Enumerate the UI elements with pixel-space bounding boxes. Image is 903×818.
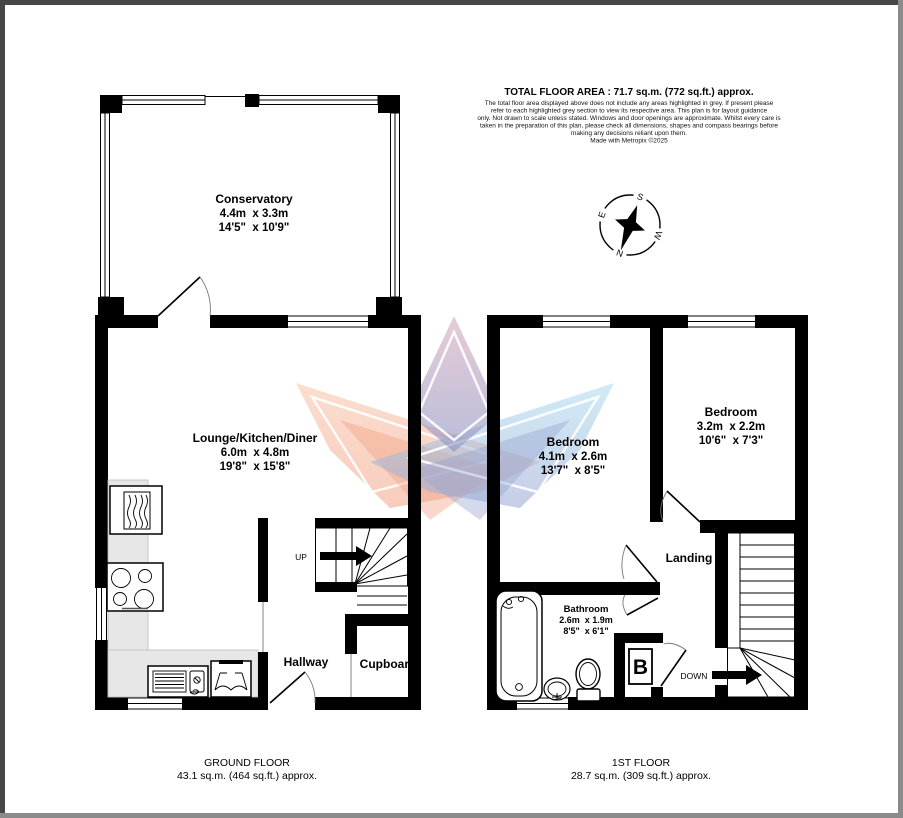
watermark-logo bbox=[296, 316, 614, 520]
sink-icon bbox=[148, 666, 208, 697]
window-top-bedroom1 bbox=[543, 315, 610, 328]
cupboard-label: Cupboard bbox=[360, 657, 417, 671]
conservatory-dims-ft: 14'5" x 10'9" bbox=[219, 222, 290, 234]
disclaimer-line-5: making any decisions reliant upon them. bbox=[571, 130, 687, 137]
bedroom2-dims-ft: 10'6" x 7'3" bbox=[699, 435, 763, 447]
bathroom-door bbox=[623, 595, 658, 615]
window-top-bedroom2 bbox=[688, 315, 755, 328]
landing-label: Landing bbox=[666, 551, 713, 565]
washing-machine-icon bbox=[211, 660, 251, 697]
down-label: DOWN bbox=[681, 671, 708, 681]
footer-labels: GROUND FLOOR 43.1 sq.m. (464 sq.ft.) app… bbox=[177, 757, 711, 782]
boiler-label: B bbox=[633, 656, 648, 679]
lounge-name: Lounge/Kitchen/Diner bbox=[193, 431, 318, 445]
bedroom2-door bbox=[661, 491, 700, 522]
window-left-ground bbox=[95, 588, 108, 640]
conservatory-door bbox=[158, 277, 210, 316]
hallway-label: Hallway bbox=[284, 655, 329, 669]
bedroom2-dims-m: 3.2m x 2.2m bbox=[697, 421, 765, 433]
basin-icon bbox=[544, 678, 570, 700]
toilet-icon bbox=[576, 659, 600, 701]
bedroom1-dims-ft: 13'7" x 8'5" bbox=[541, 465, 605, 477]
hob-icon bbox=[107, 563, 163, 611]
boiler-icon: B bbox=[629, 649, 652, 684]
disclaimer-line-4: taken in the preparation of this plan, p… bbox=[480, 123, 778, 130]
first-floor-label: 1ST FLOOR bbox=[612, 757, 671, 769]
first-floor-area: 28.7 sq.m. (309 sq.ft.) approx. bbox=[571, 770, 711, 782]
disclaimer-line-2: refer to each highlighted grey section t… bbox=[491, 108, 768, 115]
front-door bbox=[270, 672, 315, 703]
oven-icon bbox=[110, 486, 162, 534]
ground-floor-label: GROUND FLOOR bbox=[204, 757, 290, 769]
disclaimer-line-3: only. Not drawn to scale unless stated. … bbox=[477, 115, 781, 122]
total-floor-area: TOTAL FLOOR AREA : 71.7 sq.m. (772 sq.ft… bbox=[504, 87, 754, 98]
disclaimer-line-6: Made with Metropix ©2025 bbox=[590, 137, 668, 145]
disclaimer-line-1: The total floor area displayed above doe… bbox=[485, 100, 774, 107]
bathroom-dims-m: 2.6m x 1.9m bbox=[559, 615, 613, 625]
hallway-divider-wall bbox=[258, 518, 268, 697]
conservatory-name: Conservatory bbox=[215, 192, 293, 206]
conservatory-dims-m: 4.4m x 3.3m bbox=[220, 208, 288, 220]
bedroom1-name: Bedroom bbox=[547, 435, 600, 449]
ground-floor-area: 43.1 sq.m. (464 sq.ft.) approx. bbox=[177, 770, 317, 782]
floorplan-drawing: B bbox=[0, 0, 903, 818]
bathroom-name: Bathroom bbox=[564, 604, 609, 615]
floorplan-page: B bbox=[0, 0, 903, 818]
first-floor-plan: B bbox=[487, 315, 808, 710]
bedroom1-door bbox=[622, 545, 657, 582]
header-block: TOTAL FLOOR AREA : 71.7 sq.m. (772 sq.ft… bbox=[477, 87, 781, 145]
bedroom2-name: Bedroom bbox=[705, 405, 758, 419]
compass-rose-icon: S W N E bbox=[595, 190, 665, 260]
bathtub-icon bbox=[496, 591, 542, 701]
ground-floor-plan bbox=[95, 94, 421, 710]
lounge-dims-ft: 19'8" x 15'8" bbox=[220, 461, 291, 473]
window-bottom-ground bbox=[128, 697, 182, 710]
bathroom-dims-ft: 8'5" x 6'1" bbox=[563, 626, 608, 636]
window-top-ground bbox=[288, 315, 368, 328]
bedroom1-dims-m: 4.1m x 2.6m bbox=[539, 451, 607, 463]
up-label: UP bbox=[295, 552, 307, 562]
lounge-dims-m: 6.0m x 4.8m bbox=[221, 447, 289, 459]
